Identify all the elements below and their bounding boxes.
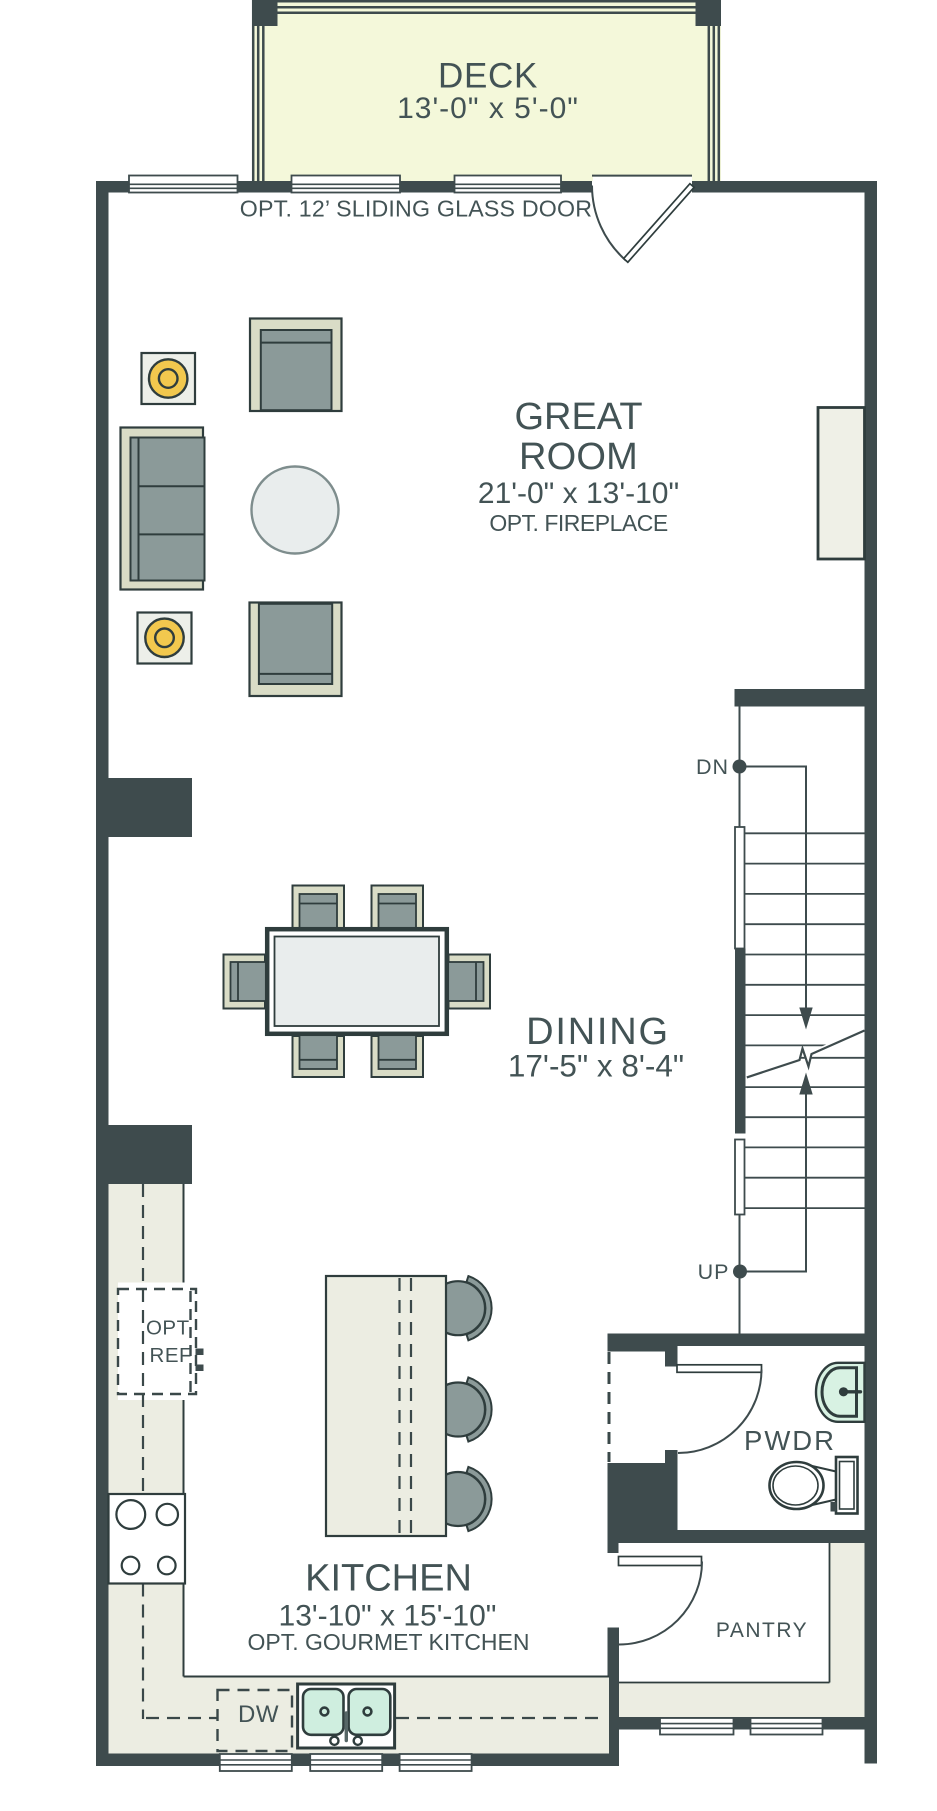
svg-text:REF: REF — [150, 1344, 193, 1367]
svg-text:OPT. 12’ SLIDING GLASS DOOR: OPT. 12’ SLIDING GLASS DOOR — [240, 196, 592, 222]
svg-text:13'-0" x 5'-0": 13'-0" x 5'-0" — [397, 92, 579, 125]
svg-text:DW: DW — [238, 1701, 279, 1728]
svg-text:DECK: DECK — [438, 57, 538, 96]
svg-text:OPT: OPT — [146, 1317, 190, 1340]
svg-text:ROOM: ROOM — [519, 436, 638, 478]
svg-text:13'-10" x 15'-10": 13'-10" x 15'-10" — [279, 1600, 497, 1633]
svg-text:PANTRY: PANTRY — [716, 1619, 808, 1642]
svg-text:21'-0" x 13'-10": 21'-0" x 13'-10" — [478, 477, 679, 510]
svg-text:KITCHEN: KITCHEN — [305, 1558, 472, 1600]
svg-text:17'-5" x 8'-4": 17'-5" x 8'-4" — [508, 1048, 684, 1084]
svg-text:GREAT: GREAT — [514, 396, 642, 438]
svg-text:DN: DN — [696, 755, 729, 779]
svg-text:OPT. GOURMET KITCHEN: OPT. GOURMET KITCHEN — [248, 1629, 530, 1655]
svg-text:UP: UP — [698, 1260, 730, 1284]
svg-text:PWDR: PWDR — [744, 1425, 836, 1456]
svg-text:OPT. FIREPLACE: OPT. FIREPLACE — [489, 510, 667, 536]
